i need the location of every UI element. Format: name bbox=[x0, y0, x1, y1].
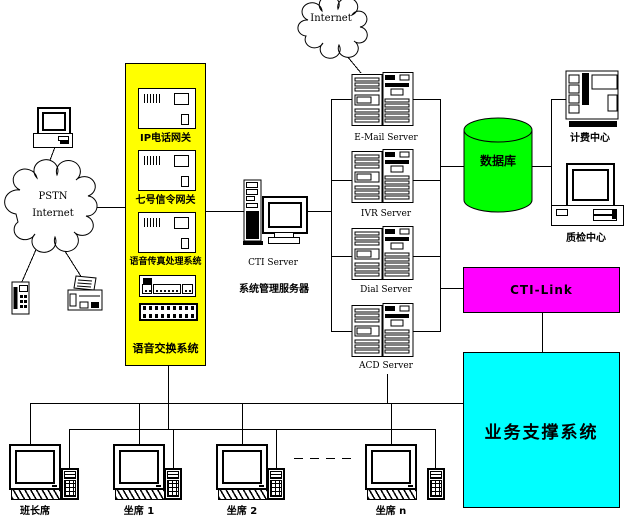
ip-gateway-icon bbox=[138, 88, 196, 129]
ivr-server-icon bbox=[351, 148, 415, 206]
email-server-label: E-Mail Server bbox=[330, 133, 442, 143]
acd-server-label: ACD Server bbox=[330, 361, 442, 371]
tower-server-icon bbox=[243, 179, 263, 246]
billing-center-icon bbox=[565, 70, 621, 128]
cti-link-label: CTI-Link bbox=[510, 283, 573, 297]
vent-lines-icon bbox=[144, 156, 161, 165]
ip-gateway-label: IP电话网关 bbox=[126, 129, 205, 144]
qc-monitor-icon bbox=[566, 163, 615, 207]
qc-center-label: 质检中心 bbox=[552, 229, 620, 244]
diagram-canvas: Internet PSTN Internet bbox=[0, 0, 632, 516]
internet-cloud-label: Internet bbox=[300, 13, 362, 24]
email-server-icon bbox=[351, 71, 415, 129]
billing-center-label: 计费中心 bbox=[556, 129, 624, 144]
qc-desktop-icon bbox=[551, 205, 624, 226]
supervisor-station-label: 班长席 bbox=[4, 502, 66, 516]
business-support-box: 业务支撑系统 bbox=[463, 352, 620, 508]
cti-server-sublabel: 系统管理服务器 bbox=[226, 280, 322, 295]
agent-station-1-label: 坐席 1 bbox=[108, 502, 170, 516]
cti-link-box: CTI-Link bbox=[463, 267, 620, 313]
internet-cloud bbox=[298, 0, 367, 58]
switch-icon bbox=[139, 303, 198, 321]
acd-server-icon bbox=[351, 302, 415, 360]
vent-lines-icon bbox=[144, 218, 161, 227]
cti-monitor-icon bbox=[262, 196, 308, 234]
pstn-fax-icon bbox=[66, 274, 104, 314]
cti-server-label: CTI Server bbox=[233, 258, 313, 268]
dial-server-icon bbox=[351, 225, 415, 283]
voice-fax-system-label: 语音传真处理系统 bbox=[126, 254, 205, 267]
voice-platform-label: 语音交换系统 bbox=[126, 340, 205, 356]
database-label: 数据库 bbox=[468, 152, 528, 169]
ss7-gateway-icon bbox=[138, 150, 196, 191]
dial-server-label: Dial Server bbox=[330, 285, 442, 295]
business-support-label: 业务支撑系统 bbox=[485, 418, 599, 443]
vent-lines-icon bbox=[144, 94, 161, 103]
agent-station-n-label: 坐席 n bbox=[360, 502, 422, 516]
pstn-cloud-label-line1: PSTN bbox=[20, 191, 86, 202]
voice-card-icon bbox=[139, 275, 196, 297]
ss7-gateway-label: 七号信令网关 bbox=[126, 191, 205, 206]
ivr-server-label: IVR Server bbox=[330, 209, 442, 219]
pstn-cloud-label-line2: Internet bbox=[20, 208, 86, 219]
voice-fax-system-icon bbox=[138, 212, 196, 253]
pstn-cloud bbox=[5, 160, 97, 253]
voice-platform-panel: IP电话网关 七号信令网关 语音传真处理系统 语音交换系统 bbox=[125, 63, 206, 366]
pstn-phone-icon bbox=[11, 281, 30, 315]
agent-station-2-label: 坐席 2 bbox=[211, 502, 273, 516]
